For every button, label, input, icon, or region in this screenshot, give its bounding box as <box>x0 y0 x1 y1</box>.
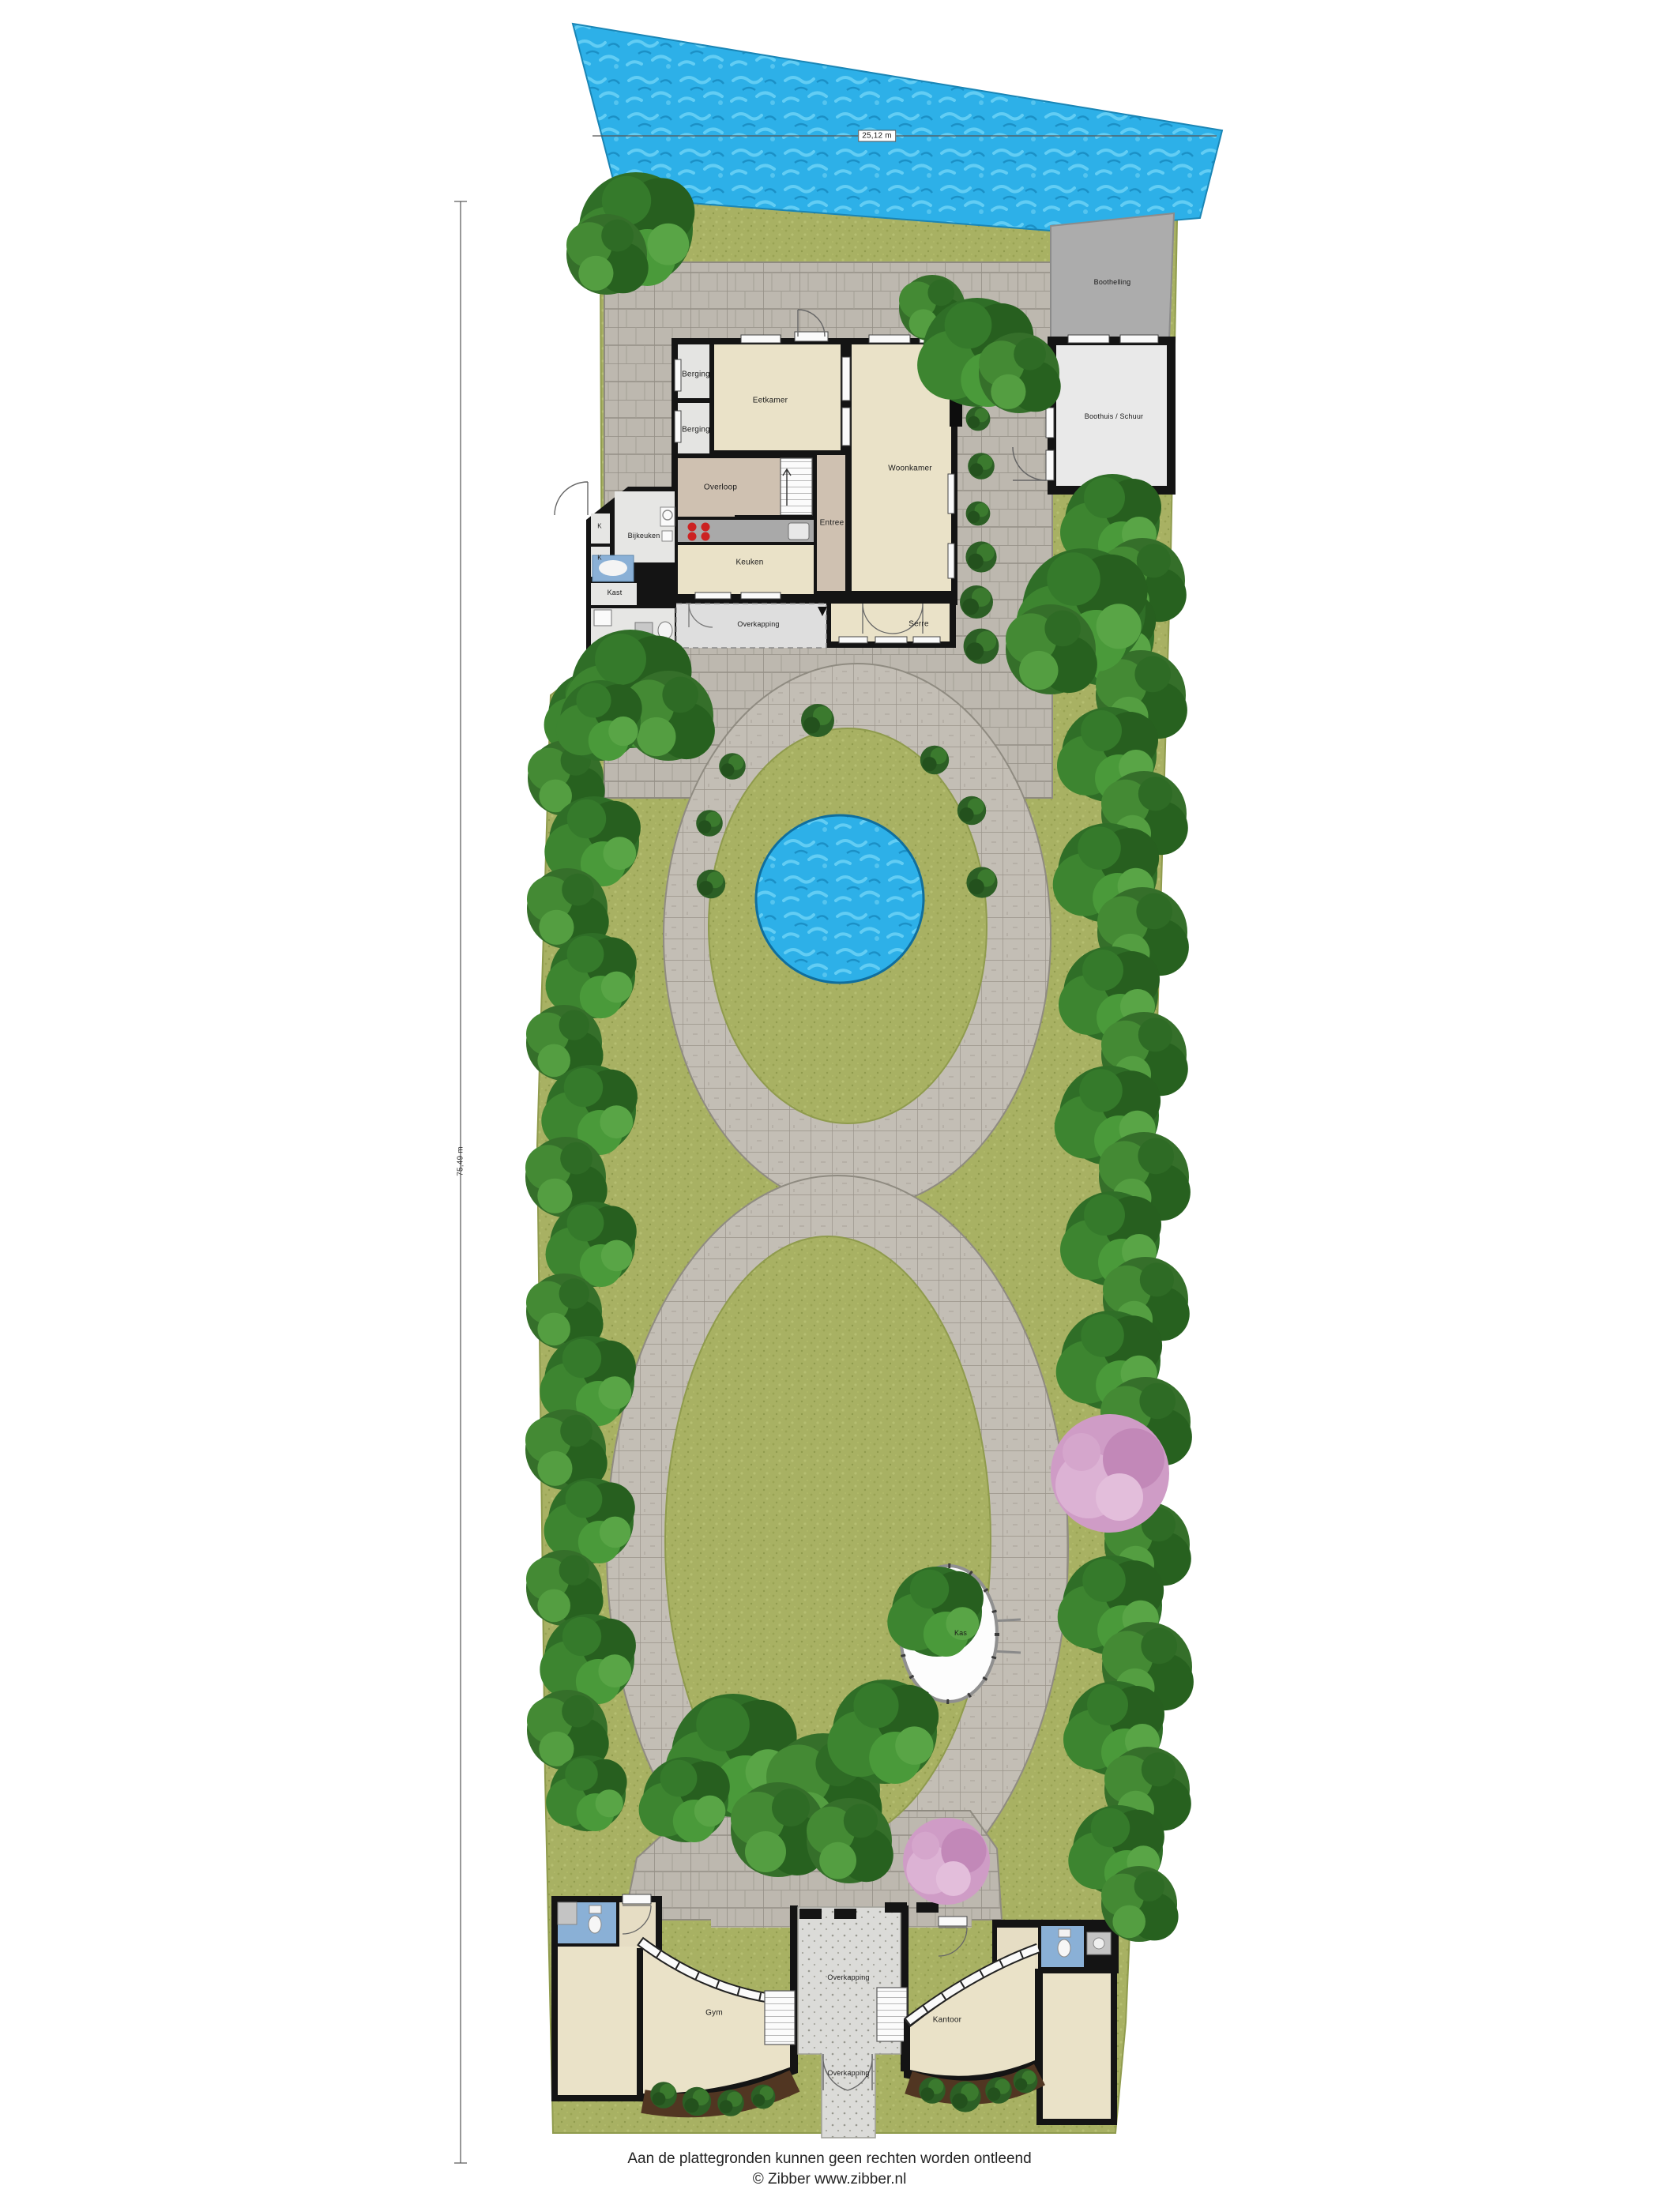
room-left-wing <box>558 1947 637 2095</box>
footer-copyright: © Zibber www.zibber.nl <box>753 2171 907 2188</box>
dimension-label-site-depth: 75,49 m <box>457 1146 465 1176</box>
pink-tree-2 <box>903 1818 990 1905</box>
pond <box>756 815 924 983</box>
boothelling-area <box>1051 213 1174 340</box>
stairs-left <box>765 1991 795 2045</box>
area-label-boothuis: Boothuis / Schuur <box>1085 412 1143 420</box>
area-label-kas: Kas <box>954 1629 967 1637</box>
footer-disclaimer: Aan de plattegronden kunnen geen rechten… <box>627 2150 1031 2168</box>
room-label-berging-1: Berging <box>682 371 710 379</box>
toilet <box>589 1916 601 1933</box>
room-label-berging-2: Berging <box>682 426 710 434</box>
room-label-overkapping-house: Overkapping <box>737 620 779 628</box>
room-label-closet-1: K <box>597 523 602 530</box>
room-label-gym: Gym <box>705 2009 723 2018</box>
room-keuken <box>678 545 814 594</box>
dimension-label-water-width: 25,12 m <box>858 130 896 142</box>
pink-tree-1 <box>1051 1414 1169 1533</box>
stairs-right <box>877 1988 907 2041</box>
room-label-keuken: Keuken <box>735 559 763 567</box>
stairs-up <box>781 458 812 515</box>
room-label-bijkeuken: Bijkeuken <box>628 532 660 540</box>
room-label-woonkamer: Woonkamer <box>888 465 932 473</box>
room-label-overkapping-noord: Overkapping <box>827 1973 869 1981</box>
room-label-entree: Entree <box>820 519 845 528</box>
room-label-overkapping-zuid: Overkapping <box>827 2069 869 2077</box>
toilet <box>1058 1939 1070 1957</box>
room-label-eetkamer: Eetkamer <box>753 397 788 405</box>
room-serre <box>831 604 950 641</box>
site-plan-page: Berging Berging Eetkamer Woonkamer Overl… <box>0 0 1659 2212</box>
room-label-closet-2: K <box>597 555 602 562</box>
kitchen-sink <box>788 523 809 540</box>
room-label-kantoor: Kantoor <box>933 2016 961 2025</box>
site-plan-graphic <box>0 0 1659 2212</box>
room-bijkeuken <box>615 491 675 562</box>
room-label-kast: Kast <box>608 589 623 596</box>
room-right-wing <box>1043 1973 1111 2119</box>
room-label-overloop: Overloop <box>704 483 737 492</box>
room-label-serre: Serre <box>908 620 928 629</box>
area-label-boothelling: Boothelling <box>1094 278 1131 286</box>
